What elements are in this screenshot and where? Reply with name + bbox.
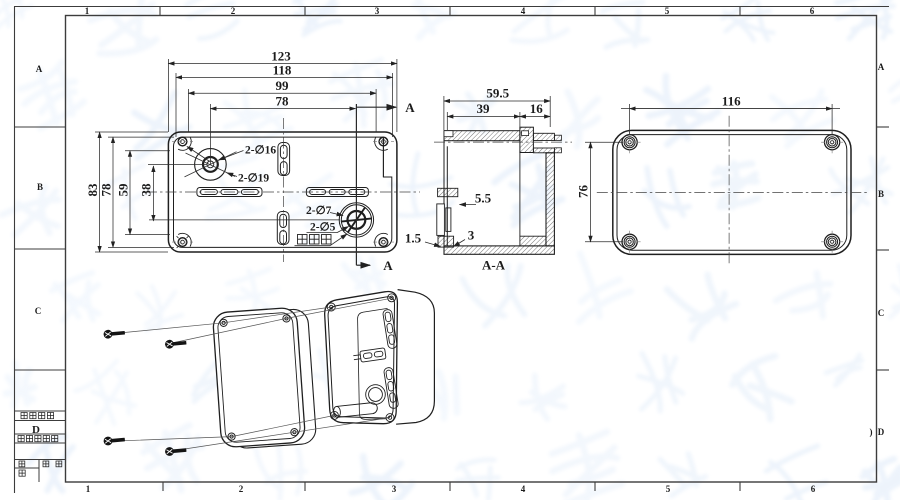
svg-text:1.5: 1.5 — [405, 231, 422, 246]
svg-text:A-A: A-A — [482, 258, 506, 273]
svg-text:59: 59 — [116, 183, 131, 197]
svg-text:A: A — [405, 100, 415, 115]
svg-text:78: 78 — [276, 94, 290, 109]
svg-text:2-∅16: 2-∅16 — [245, 145, 276, 157]
svg-text:39: 39 — [477, 101, 491, 116]
svg-text:6: 6 — [811, 484, 816, 494]
svg-text:C: C — [878, 308, 885, 318]
svg-text:2: 2 — [239, 484, 244, 494]
svg-text:4: 4 — [521, 484, 526, 494]
svg-text:B: B — [878, 189, 884, 199]
svg-text:38: 38 — [139, 183, 154, 197]
svg-text:A: A — [878, 62, 885, 72]
svg-text:C: C — [35, 306, 42, 316]
svg-text:3: 3 — [375, 6, 380, 16]
svg-text:5.5: 5.5 — [475, 191, 492, 206]
svg-text:76: 76 — [576, 185, 591, 199]
svg-text:16: 16 — [530, 101, 544, 116]
svg-text:B: B — [37, 182, 43, 192]
svg-text:A: A — [36, 64, 43, 74]
svg-text:2-∅5: 2-∅5 — [310, 222, 336, 234]
svg-text:5: 5 — [666, 484, 671, 494]
svg-text:59.5: 59.5 — [486, 86, 509, 101]
svg-text:99: 99 — [276, 78, 290, 93]
svg-text:1: 1 — [86, 484, 91, 494]
svg-text:D: D — [32, 424, 40, 436]
svg-text:4: 4 — [521, 6, 526, 16]
svg-text:2-∅19: 2-∅19 — [238, 173, 269, 185]
svg-text:78: 78 — [99, 183, 114, 197]
svg-text:D: D — [878, 427, 885, 437]
svg-text:): ) — [870, 427, 873, 437]
svg-text:3: 3 — [468, 228, 475, 243]
svg-text:5: 5 — [665, 6, 670, 16]
svg-text:123: 123 — [271, 49, 291, 64]
svg-text:1: 1 — [85, 6, 90, 16]
svg-text:A: A — [383, 258, 393, 273]
svg-text:116: 116 — [722, 94, 741, 109]
svg-text:3: 3 — [392, 484, 397, 494]
svg-text:6: 6 — [810, 6, 815, 16]
svg-text:118: 118 — [273, 62, 292, 77]
svg-text:2-∅7: 2-∅7 — [306, 205, 332, 217]
svg-text:2: 2 — [231, 6, 236, 16]
